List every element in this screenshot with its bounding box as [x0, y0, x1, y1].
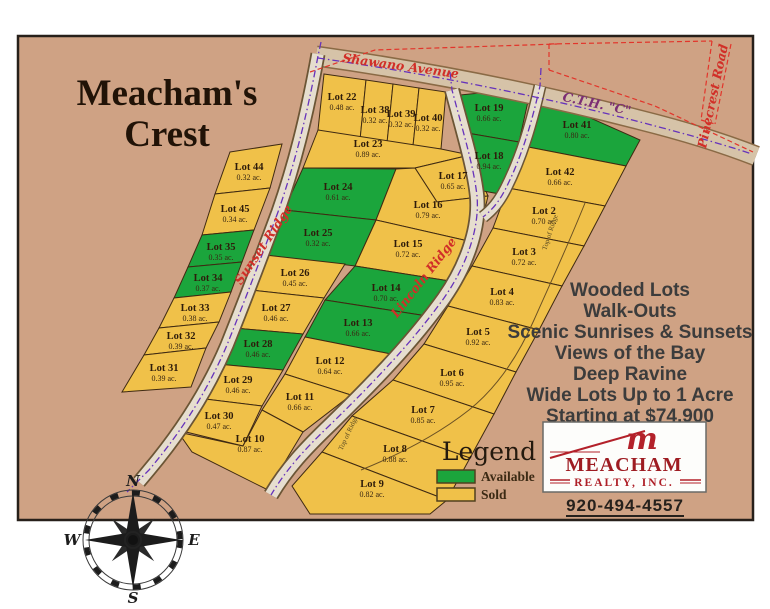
lot-31-label: Lot 31 — [150, 363, 179, 374]
lot-17-label: Lot 17 — [439, 171, 468, 182]
lot-4-acreage: 0.83 ac. — [489, 298, 514, 307]
lot-32-acreage: 0.39 ac. — [168, 342, 193, 351]
lot-18-acreage: 0.94 ac. — [476, 162, 501, 171]
lot-15-acreage: 0.72 ac. — [395, 250, 420, 259]
lot-30-acreage: 0.47 ac. — [206, 422, 231, 431]
lot-34-label: Lot 34 — [194, 273, 224, 284]
lot-19-label: Lot 19 — [475, 103, 504, 114]
legend-available-label: Available — [481, 469, 535, 484]
lot-25-acreage: 0.32 ac. — [305, 239, 330, 248]
map-title-line2: Crest — [124, 114, 210, 155]
compass-hub — [128, 535, 138, 545]
realty-logo: m MEACHAM REALTY, INC. — [543, 422, 706, 492]
lot-28-acreage: 0.46 ac. — [245, 350, 270, 359]
lot-35-acreage: 0.35 ac. — [208, 253, 233, 262]
legend-title: Legend — [442, 437, 536, 466]
phone-number: 920-494-4557 — [566, 496, 684, 515]
lot-10-label: Lot 10 — [236, 434, 265, 445]
lot-11-acreage: 0.66 ac. — [287, 403, 312, 412]
plat-map-svg: Meacham's Crest — [0, 0, 770, 609]
lot-32-label: Lot 32 — [167, 331, 196, 342]
legend-sold-label: Sold — [481, 487, 507, 502]
legend-sold-swatch — [437, 488, 475, 501]
lot-7-acreage: 0.85 ac. — [410, 416, 435, 425]
lot-29-label: Lot 29 — [224, 375, 253, 386]
lot-23-label: Lot 23 — [354, 139, 383, 150]
lot-9-label: Lot 9 — [360, 479, 384, 490]
lot-14-label: Lot 14 — [372, 283, 402, 294]
compass-north-label: N — [125, 472, 141, 490]
lot-22-label: Lot 22 — [328, 92, 357, 103]
lot-30-label: Lot 30 — [205, 411, 234, 422]
lot-44-label: Lot 44 — [235, 162, 265, 173]
lot-7-label: Lot 7 — [411, 405, 435, 416]
logo-subtitle: REALTY, INC. — [574, 477, 674, 489]
lot-40-label: Lot 40 — [414, 113, 443, 124]
logo-monogram: m — [626, 422, 658, 457]
lot-39-acreage: 0.32 ac. — [388, 120, 413, 129]
lot-22-acreage: 0.48 ac. — [329, 103, 354, 112]
lot-5-acreage: 0.92 ac. — [465, 338, 490, 347]
lot-3-label: Lot 3 — [512, 247, 536, 258]
compass-east-label: E — [187, 531, 200, 549]
lot-12-acreage: 0.64 ac. — [317, 367, 342, 376]
lot-24-acreage: 0.61 ac. — [325, 193, 350, 202]
lot-41-acreage: 0.80 ac. — [564, 131, 589, 140]
lot-10-acreage: 0.87 ac. — [237, 445, 262, 454]
lot-23-acreage: 0.89 ac. — [355, 150, 380, 159]
lot-19-acreage: 0.66 ac. — [476, 114, 501, 123]
lot-25-label: Lot 25 — [304, 228, 333, 239]
lot-27-label: Lot 27 — [262, 303, 291, 314]
lot-13-acreage: 0.66 ac. — [345, 329, 370, 338]
lot-33-label: Lot 33 — [181, 303, 210, 314]
lot-8-acreage: 0.88 ac. — [382, 455, 407, 464]
lot-24-label: Lot 24 — [324, 182, 354, 193]
lot-17-acreage: 0.65 ac. — [440, 182, 465, 191]
lot-38-acreage: 0.32 ac. — [362, 116, 387, 125]
lot-33-acreage: 0.38 ac. — [182, 314, 207, 323]
marketing-line-1: Wooded Lots — [570, 280, 690, 301]
map-title-line1: Meacham's — [77, 73, 258, 114]
lot-28-label: Lot 28 — [244, 339, 273, 350]
lot-34-acreage: 0.37 ac. — [195, 284, 220, 293]
lot-45-label: Lot 45 — [221, 204, 250, 215]
lot-38-label: Lot 38 — [361, 105, 390, 116]
lot-8-label: Lot 8 — [383, 444, 407, 455]
lot-9-acreage: 0.82 ac. — [359, 490, 384, 499]
marketing-line-5: Deep Ravine — [573, 364, 687, 385]
marketing-line-4: Views of the Bay — [555, 343, 706, 364]
lot-12-label: Lot 12 — [316, 356, 345, 367]
lot-16-acreage: 0.79 ac. — [415, 211, 440, 220]
lot-35-label: Lot 35 — [207, 242, 236, 253]
lot-13-label: Lot 13 — [344, 318, 373, 329]
lot-18-label: Lot 18 — [475, 151, 504, 162]
lot-39-label: Lot 39 — [387, 109, 416, 120]
lot-5-label: Lot 5 — [466, 327, 490, 338]
marketing-line-3: Scenic Sunrises & Sunsets — [508, 322, 753, 343]
lot-44-acreage: 0.32 ac. — [236, 173, 261, 182]
lot-40-acreage: 0.32 ac. — [415, 124, 440, 133]
lot-15-label: Lot 15 — [394, 239, 423, 250]
lot-6-acreage: 0.95 ac. — [439, 379, 464, 388]
lot-4-label: Lot 4 — [490, 287, 514, 298]
lot-11-label: Lot 11 — [286, 392, 314, 403]
lot-26-label: Lot 26 — [281, 268, 310, 279]
lot-6-label: Lot 6 — [440, 368, 464, 379]
legend-available-swatch — [437, 470, 475, 483]
lot-26-acreage: 0.45 ac. — [282, 279, 307, 288]
lot-3-acreage: 0.72 ac. — [511, 258, 536, 267]
lot-16-label: Lot 16 — [414, 200, 443, 211]
lot-29-acreage: 0.46 ac. — [225, 386, 250, 395]
lot-45-acreage: 0.34 ac. — [222, 215, 247, 224]
compass-south-label: S — [128, 589, 139, 607]
lot-31-acreage: 0.39 ac. — [151, 374, 176, 383]
lot-42-label: Lot 42 — [546, 167, 575, 178]
marketing-line-2: Walk-Outs — [583, 301, 676, 322]
logo-name: MEACHAM — [566, 454, 683, 476]
marketing-line-6: Wide Lots Up to 1 Acre — [526, 385, 733, 406]
lot-27-acreage: 0.46 ac. — [263, 314, 288, 323]
lot-42-acreage: 0.66 ac. — [547, 178, 572, 187]
compass-west-label: W — [64, 531, 83, 549]
lot-41-label: Lot 41 — [563, 120, 592, 131]
plat-map-page: Meacham's Crest — [0, 0, 770, 609]
